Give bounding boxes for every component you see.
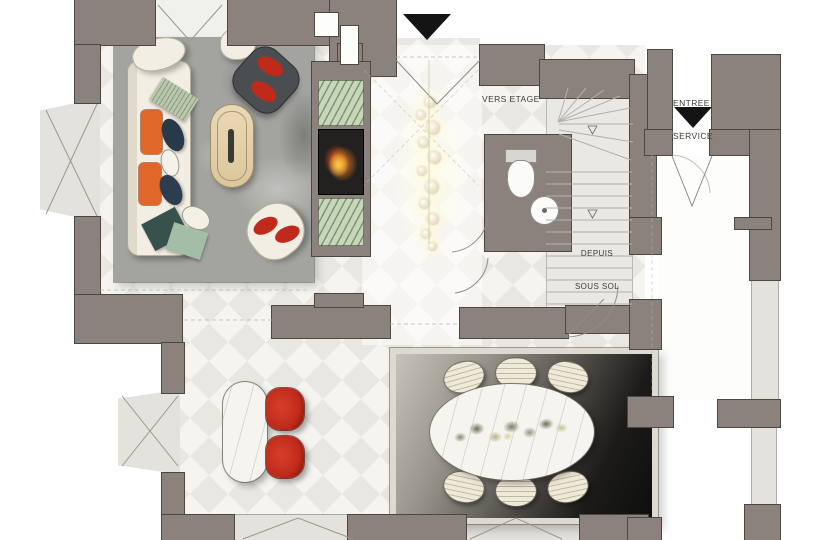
sofa-seat-cushion-orange-2 bbox=[139, 163, 161, 205]
wall-segment bbox=[648, 50, 672, 132]
wall-segment bbox=[162, 343, 184, 393]
exterior-ground-top-right bbox=[480, 0, 650, 45]
fireplace-bench-top bbox=[318, 80, 364, 126]
wc-sink bbox=[531, 197, 558, 224]
coffee-table-slot bbox=[228, 129, 234, 163]
chandelier-bulb bbox=[427, 213, 439, 225]
label-depuis-line1: DEPUIS bbox=[554, 248, 640, 259]
armchair-dark-cushion-red-1 bbox=[254, 52, 286, 80]
wall-segment bbox=[480, 45, 544, 85]
chandelier-bulb bbox=[418, 137, 429, 148]
fireplace-flame bbox=[325, 143, 357, 181]
chandelier-bulb bbox=[416, 110, 426, 120]
wall-segment bbox=[162, 515, 234, 540]
chandelier-bulb bbox=[425, 180, 439, 194]
wall-segment bbox=[162, 473, 184, 519]
label-depuis-sous-sol: DEPUIS SOUS SOL bbox=[554, 226, 640, 314]
label-entree-line1: ENTREE bbox=[673, 98, 713, 109]
chandelier-bulb bbox=[426, 121, 440, 135]
armchair-dark-cushion-red-2 bbox=[248, 77, 280, 106]
toilet-bowl bbox=[508, 161, 534, 197]
wall-segment bbox=[718, 400, 780, 427]
console-table bbox=[223, 382, 267, 482]
bay-window-living bbox=[40, 95, 100, 225]
dining-table-centerpiece bbox=[448, 404, 576, 459]
wall-segment bbox=[460, 308, 568, 338]
wall-segment bbox=[712, 55, 780, 132]
wall-segment bbox=[540, 60, 634, 98]
wall-segment bbox=[272, 306, 390, 338]
wall-segment bbox=[735, 218, 771, 229]
wall-segment bbox=[315, 294, 363, 307]
dining-table bbox=[430, 384, 594, 480]
fireplace bbox=[318, 129, 364, 195]
wall-segment bbox=[745, 505, 780, 540]
wall-segment bbox=[645, 130, 672, 155]
wall-segment bbox=[75, 0, 155, 45]
label-depuis-line2: SOUS SOL bbox=[554, 281, 640, 292]
wall-segment bbox=[75, 295, 182, 343]
window-right-lower bbox=[752, 427, 776, 507]
bay-window-lower-room bbox=[118, 388, 180, 476]
wall-segment bbox=[348, 515, 466, 540]
label-entree-service: ENTREE SERVICE bbox=[673, 76, 713, 164]
wc-sink-drain bbox=[542, 208, 547, 213]
wall-niche-1 bbox=[315, 13, 338, 36]
wall-segment bbox=[75, 217, 100, 305]
wall-segment bbox=[628, 518, 661, 540]
label-vers-etage: VERS ETAGE bbox=[482, 94, 540, 105]
armchair-light-cushion-red-2 bbox=[272, 222, 302, 246]
fireplace-bench-bottom bbox=[318, 198, 364, 246]
wall-segment bbox=[628, 397, 673, 427]
label-entree-line2: SERVICE bbox=[673, 131, 713, 142]
window-right-upper bbox=[752, 280, 778, 400]
chandelier-bulb bbox=[424, 96, 436, 108]
chandelier-bulb bbox=[421, 229, 431, 239]
sofa-seat-cushion-orange-1 bbox=[141, 110, 162, 154]
wall-segment bbox=[750, 130, 780, 280]
chandelier-bulb bbox=[419, 198, 430, 209]
red-chair-2 bbox=[266, 436, 304, 478]
red-chair-1 bbox=[266, 388, 304, 430]
dining-chair-5 bbox=[496, 476, 536, 506]
wall-niche-2 bbox=[341, 26, 358, 64]
chandelier-bulb bbox=[417, 166, 427, 176]
window-bottom-left bbox=[234, 515, 348, 540]
floor-plan-canvas: VERS ETAGE DEPUIS SOUS SOL ENTREE SERVIC… bbox=[0, 0, 820, 540]
service-room-floor bbox=[658, 155, 752, 400]
wall-segment bbox=[75, 45, 100, 103]
coffee-table bbox=[211, 105, 253, 187]
chandelier-bulb bbox=[428, 151, 441, 164]
main-entry-arrow-icon bbox=[403, 14, 451, 40]
chandelier-bulb bbox=[428, 242, 437, 251]
